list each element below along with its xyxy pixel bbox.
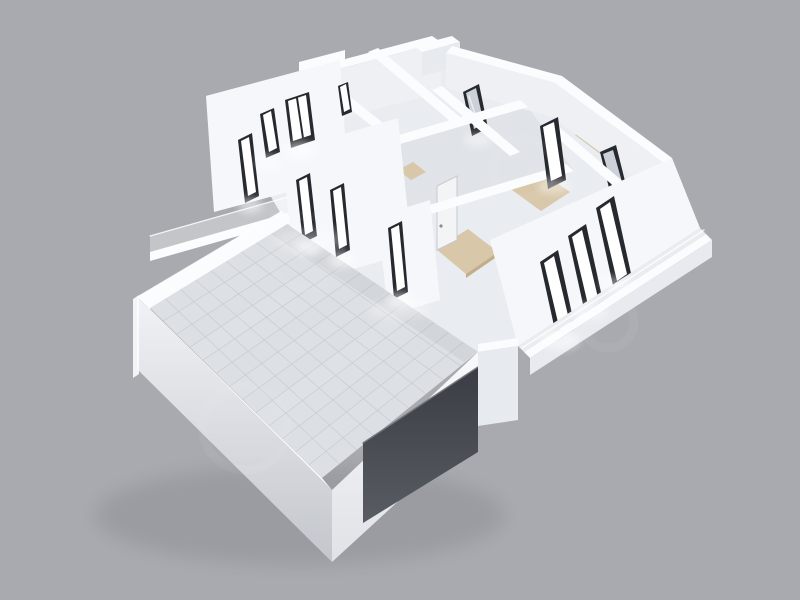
floorplan-3d-render — [0, 0, 800, 600]
garage-west-strip — [133, 295, 139, 378]
window-glow — [464, 133, 492, 147]
window-glow — [600, 276, 632, 292]
window-glow — [256, 154, 280, 170]
door-handle — [439, 224, 442, 227]
window-glow — [238, 197, 262, 213]
window-glow — [540, 330, 580, 350]
step-wall-face — [478, 346, 518, 426]
window-glow — [284, 141, 316, 159]
deck-light-pool — [368, 300, 428, 320]
render-canvas — [0, 0, 800, 600]
interior-door — [437, 176, 457, 250]
